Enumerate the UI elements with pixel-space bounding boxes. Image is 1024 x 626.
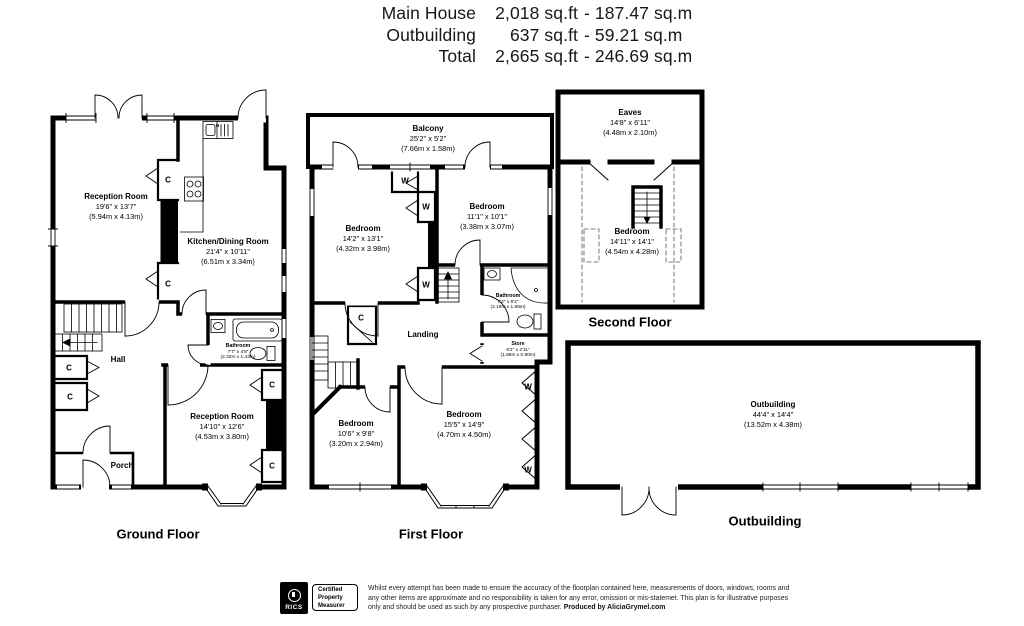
- room-dims-metric: (4.53m x 3.80m): [190, 432, 254, 442]
- room-label-reception-room-front: Reception Room 19'6" x 13'7" (5.94m x 4.…: [84, 192, 148, 222]
- wardrobe-marker: W: [401, 177, 409, 186]
- room-label-porch: Porch: [111, 461, 134, 471]
- closet-marker: C: [358, 314, 364, 323]
- produced-by: Produced by AliciaGrymel.com: [564, 604, 666, 611]
- first-stairs: [312, 268, 459, 388]
- room-name: Outbuilding: [744, 400, 802, 410]
- room-dims-metric: (4.70m x 4.50m): [437, 430, 491, 440]
- sink-icon: [484, 268, 500, 280]
- room-name: Reception Room: [84, 192, 148, 202]
- room-label-bathroom-first: Bathroom 7'2" x 6'2" (2.19m x 1.88m): [491, 293, 526, 311]
- area-summary: Main House 2,018 sq.ft - 187.47 sq.m Out…: [330, 3, 692, 68]
- closet-marker: C: [269, 462, 275, 471]
- closet-marker: C: [165, 280, 171, 289]
- disclaimer-text: Whilst every attempt has been made to en…: [368, 584, 796, 613]
- room-dims: 19'6" x 13'7": [84, 203, 148, 213]
- room-label-outbuilding: Outbuilding 44'4" x 14'4" (13.52m x 4.38…: [744, 400, 802, 430]
- room-dims: 21'4" x 10'11": [187, 248, 268, 258]
- floorplan-sheet: Main House 2,018 sq.ft - 187.47 sq.m Out…: [0, 0, 1024, 626]
- room-dims: 25'2" x 5'2": [401, 135, 455, 145]
- rics-logo: RICS: [280, 582, 308, 614]
- badge-line: Measurer: [318, 602, 357, 610]
- room-label-hall: Hall: [111, 355, 126, 365]
- room-dims: 11'1" x 10'1": [460, 213, 514, 223]
- disclaimer-line: Whilst every attempt has been made to en…: [368, 585, 776, 592]
- room-label-landing: Landing: [407, 330, 438, 340]
- summary-label: Total: [330, 46, 490, 68]
- room-label-bedroom-4: Bedroom 15'5" x 14'9" (4.70m x 4.50m): [437, 410, 491, 440]
- closet-marker: C: [66, 364, 72, 373]
- room-label-reception-room-rear: Reception Room 14'10" x 12'6" (4.53m x 3…: [190, 412, 254, 442]
- room-name: Reception Room: [190, 412, 254, 422]
- room-dims: 14'2" x 13'1": [336, 235, 390, 245]
- room-name: Bedroom: [336, 224, 390, 234]
- room-label-eaves: Eaves 14'8" x 6'11" (4.48m x 2.10m): [603, 108, 657, 138]
- room-dims-metric: (2.19m x 1.88m): [491, 305, 526, 311]
- kitchen-fixtures: [180, 122, 233, 233]
- room-name: Landing: [407, 330, 438, 340]
- room-dims-metric: (3.20m x 2.94m): [329, 439, 383, 449]
- room-name: Kitchen/Dining Room: [187, 237, 268, 247]
- closet-marker: C: [269, 381, 275, 390]
- room-label-bedroom-1: Bedroom 14'2" x 13'1" (4.32m x 3.98m): [336, 224, 390, 254]
- room-dims-metric: (4.32m x 3.98m): [336, 244, 390, 254]
- room-label-bedroom-3: Bedroom 10'6" x 9'8" (3.20m x 2.94m): [329, 419, 383, 449]
- wardrobe-marker: W: [524, 383, 532, 392]
- room-dims-metric: (13.52m x 4.38m): [744, 420, 802, 430]
- room-dims: 14'8" x 6'11": [603, 119, 657, 129]
- room-dims: 14'11" x 14'1": [605, 238, 659, 248]
- summary-sqft: 2,018 sq.ft: [490, 3, 578, 25]
- summary-label: Outbuilding: [330, 25, 490, 47]
- summary-sqft: 2,665 sq.ft: [490, 46, 578, 68]
- ground-stairs: [55, 304, 122, 351]
- room-label-bathroom-ground: Bathroom 7'7" x 4'8" (2.32m x 1.43m): [221, 343, 256, 361]
- room-dims-metric: (3.38m x 3.07m): [460, 222, 514, 232]
- room-name: Eaves: [603, 108, 657, 118]
- room-dims-metric: (6.51m x 3.34m): [187, 257, 268, 267]
- floor-title-ground: Ground Floor: [116, 527, 199, 542]
- room-name: Bedroom: [460, 202, 514, 212]
- toilet-icon: [517, 315, 533, 328]
- second-doors: [588, 162, 674, 180]
- room-dims-metric: (1.88m x 0.90m): [501, 353, 536, 359]
- room-name: Bedroom: [605, 227, 659, 237]
- ground-floor-plan: [49, 90, 289, 506]
- wardrobe-marker: W: [422, 203, 430, 212]
- room-name: Bathroom: [221, 343, 256, 350]
- room-name: Bedroom: [437, 410, 491, 420]
- room-name: Balcony: [401, 124, 455, 134]
- room-dims-metric: (4.54m x 4.28m): [605, 247, 659, 257]
- room-label-kitchen-dining: Kitchen/Dining Room 21'4" x 10'11" (6.51…: [187, 237, 268, 267]
- room-name: Porch: [111, 461, 134, 471]
- room-label-balcony: Balcony 25'2" x 5'2" (7.66m x 1.58m): [401, 124, 455, 154]
- room-label-store: Store 6'2" x 2'11" (1.88m x 0.90m): [501, 341, 536, 359]
- room-dims: 15'5" x 14'9": [437, 421, 491, 431]
- badge-line: Certified: [318, 586, 357, 594]
- summary-sqm: - 59.21 sq.m: [578, 25, 692, 47]
- floor-title-first: First Floor: [399, 527, 463, 542]
- floor-title-outbuilding: Outbuilding: [729, 514, 802, 529]
- closet-marker: C: [165, 176, 171, 185]
- certified-property-measurer-badge: Certified Property Measurer: [312, 584, 358, 611]
- room-name: Hall: [111, 355, 126, 365]
- room-name: Bathroom: [491, 293, 526, 300]
- second-stairs: [633, 187, 661, 227]
- room-label-bedroom-2: Bedroom 11'1" x 10'1" (3.38m x 3.07m): [460, 202, 514, 232]
- summary-sqm: - 246.69 sq.m: [578, 46, 692, 68]
- room-label-bedroom-second: Bedroom 14'11" x 14'1" (4.54m x 4.28m): [605, 227, 659, 257]
- rics-brand-text: RICS: [285, 604, 303, 611]
- room-name: Bedroom: [329, 419, 383, 429]
- floor-title-second: Second Floor: [588, 315, 671, 330]
- stove-icon: [185, 177, 204, 201]
- room-dims: 44'4" x 14'4": [744, 411, 802, 421]
- wardrobe-marker: W: [422, 281, 430, 290]
- wardrobe-marker: W: [524, 466, 532, 475]
- badge-line: Property: [318, 594, 357, 602]
- room-dims-metric: (4.48m x 2.10m): [603, 128, 657, 138]
- rics-lion-icon: [288, 589, 301, 602]
- room-dims-metric: (7.66m x 1.58m): [401, 144, 455, 154]
- summary-label: Main House: [330, 3, 490, 25]
- room-dims: 10'6" x 9'8": [329, 430, 383, 440]
- summary-sqft: 637 sq.ft: [490, 25, 578, 47]
- room-dims-metric: (2.32m x 1.43m): [221, 355, 256, 361]
- summary-sqm: - 187.47 sq.m: [578, 3, 692, 25]
- room-dims: 14'10" x 12'6": [190, 423, 254, 433]
- room-dims-metric: (5.94m x 4.13m): [84, 212, 148, 222]
- closet-marker: C: [67, 393, 73, 402]
- first-floor-plan: [308, 115, 555, 508]
